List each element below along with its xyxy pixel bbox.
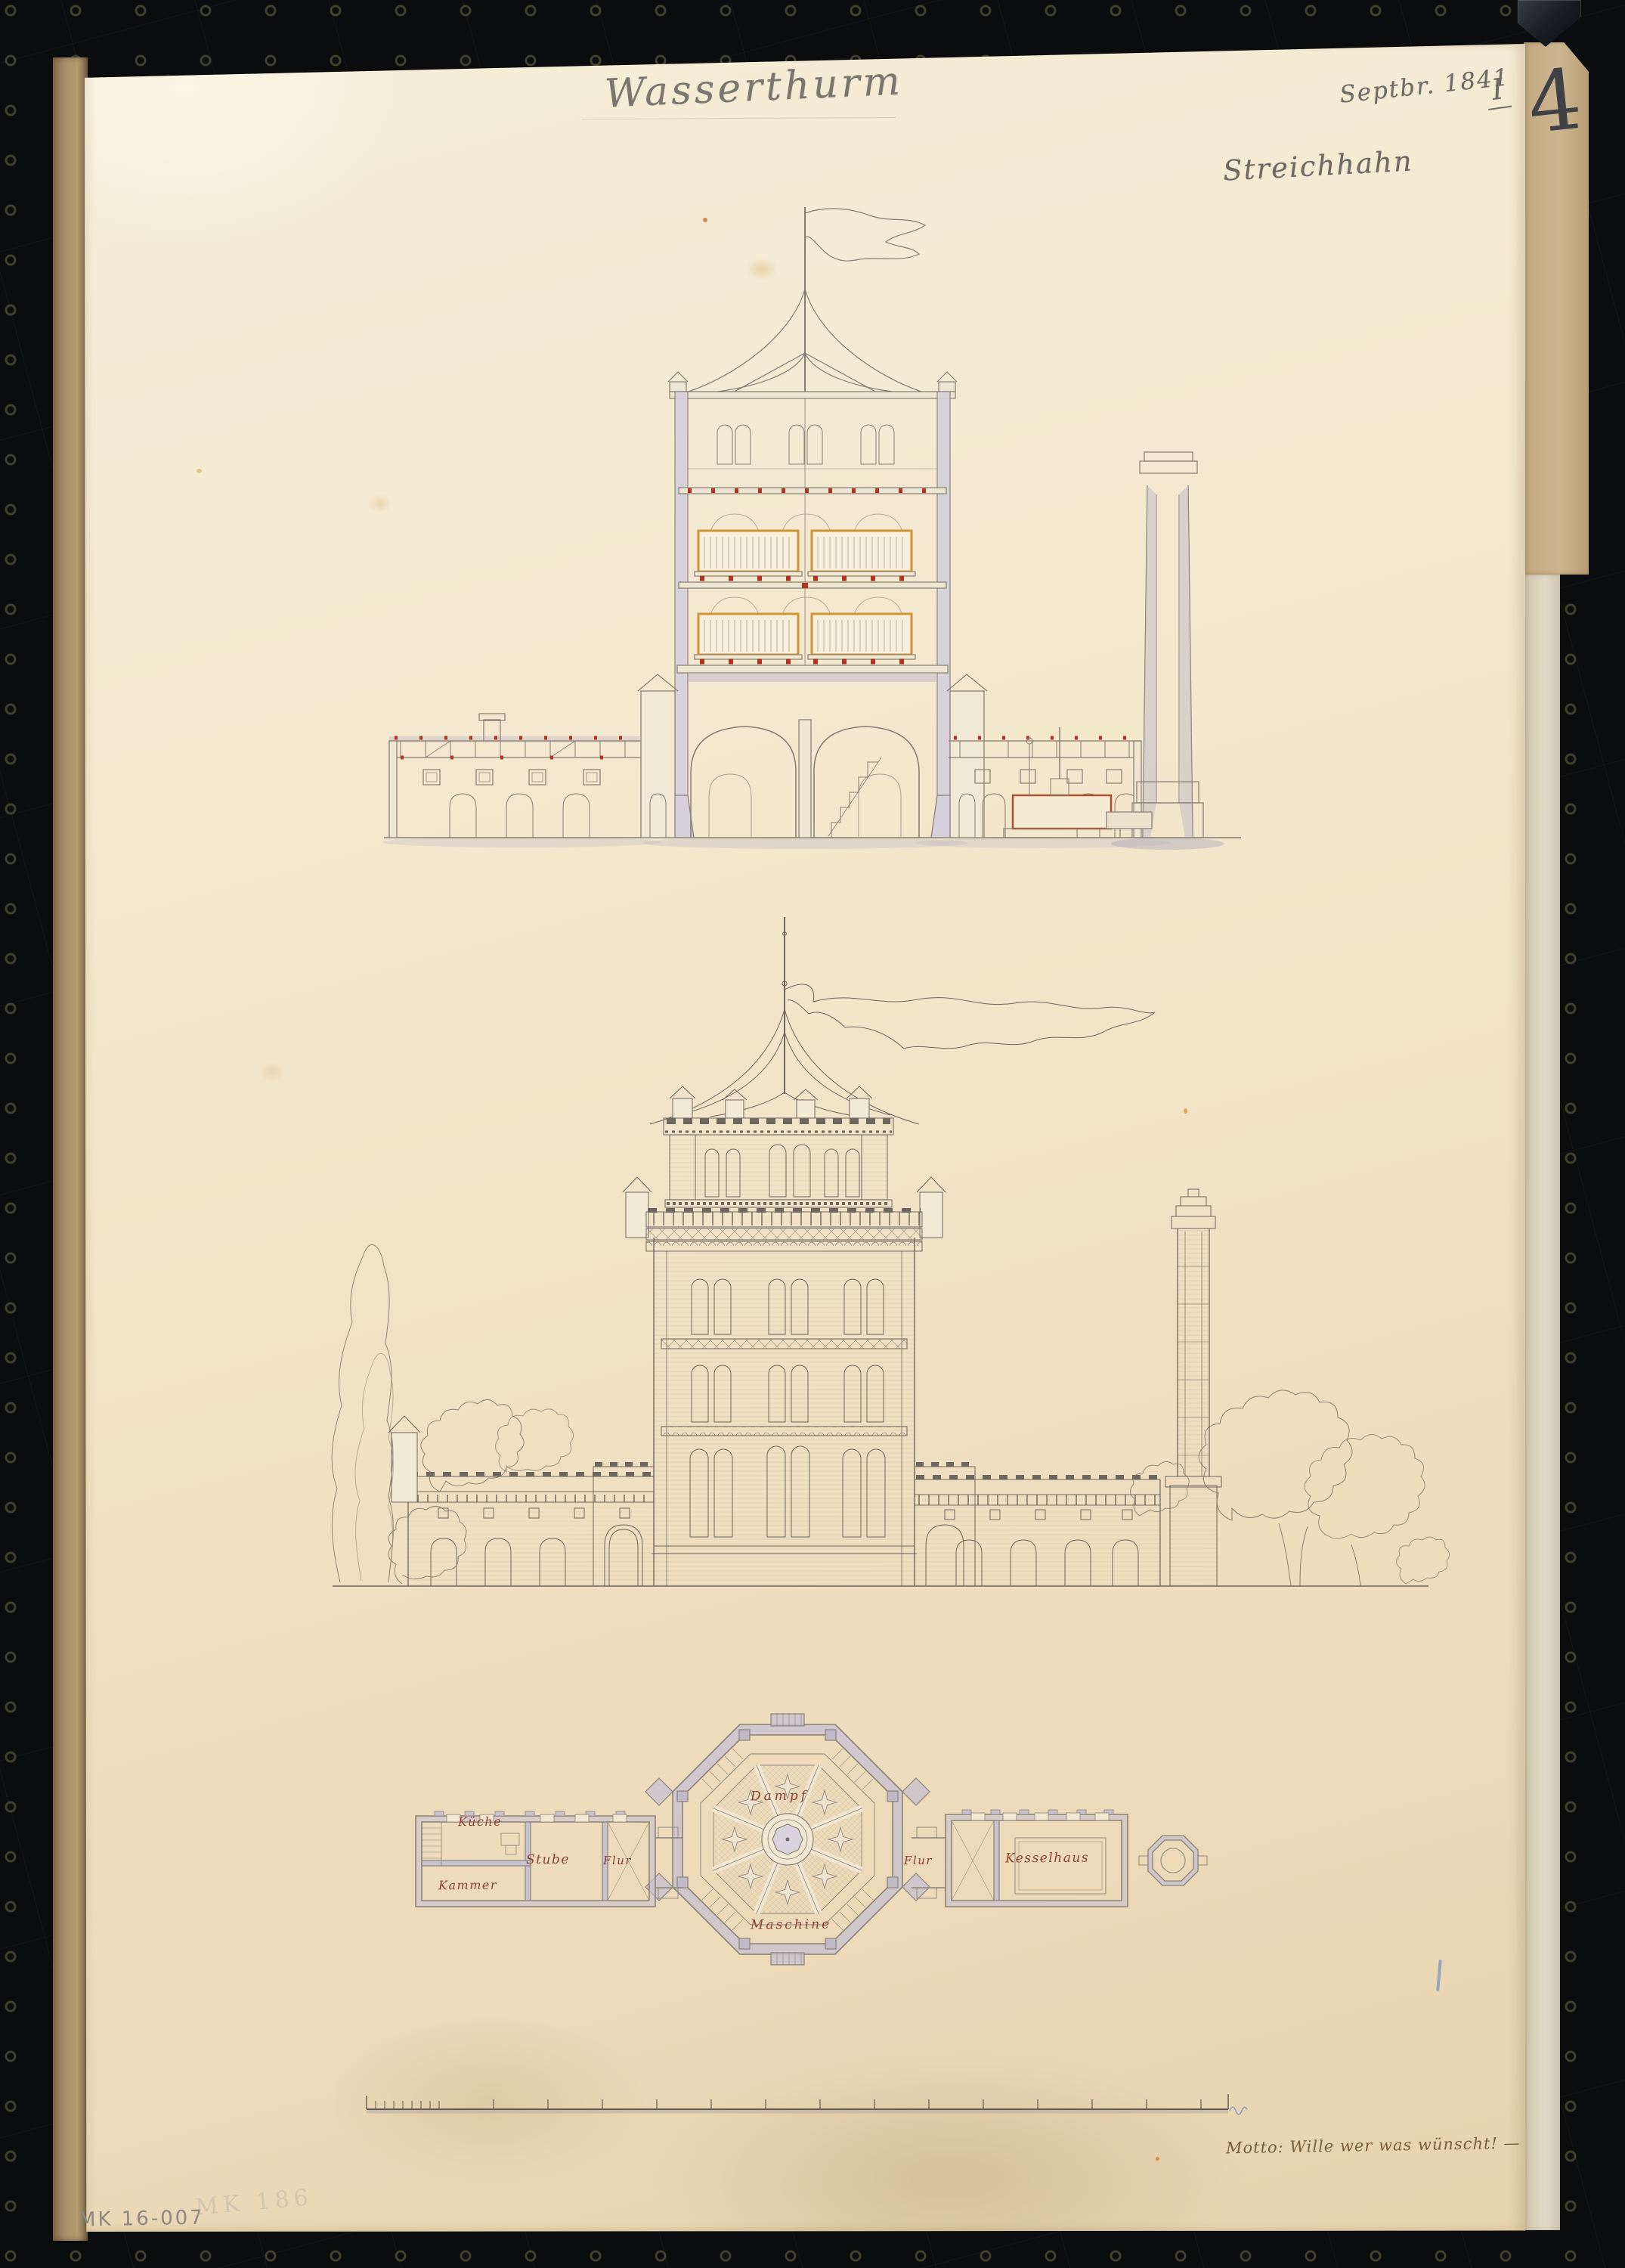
inventory-number: MK 16-007 [79, 2207, 205, 2232]
cross-section-drawing [378, 198, 1247, 863]
plan-label-kammer: Kammer [438, 1878, 497, 1893]
front-elevation-drawing [317, 911, 1451, 1591]
plan-label-kueche: Küche [458, 1814, 502, 1830]
paper-speck [197, 469, 202, 473]
blue-pencil-squiggle [1227, 2100, 1250, 2117]
scale-bar [359, 2087, 1236, 2121]
floor-plan-drawing [389, 1712, 1289, 1969]
corner-number: 4 [1524, 51, 1586, 153]
paper-speck [1184, 1108, 1187, 1114]
backing-sheet-edge [1524, 575, 1560, 2230]
plan-label-dampf: Dampf [751, 1789, 809, 1805]
paper-speck [1156, 2157, 1159, 2161]
series-numeral: I [1484, 71, 1512, 110]
metal-clip-icon [1518, 0, 1581, 47]
scanned-sheet-page: Wasserthurm Septbr. 1841 I 4 Streichhahn… [0, 0, 1625, 2268]
paper-speck [703, 218, 707, 222]
plan-label-flur-left: Flur [603, 1854, 632, 1867]
plan-label-kesselhaus: Kesselhaus [1005, 1851, 1089, 1867]
plan-label-maschine: Maschine [751, 1917, 831, 1933]
backing-board-strip [53, 57, 88, 2241]
plan-label-stube: Stube [526, 1852, 570, 1868]
plan-label-flur-right: Flur [904, 1854, 933, 1867]
